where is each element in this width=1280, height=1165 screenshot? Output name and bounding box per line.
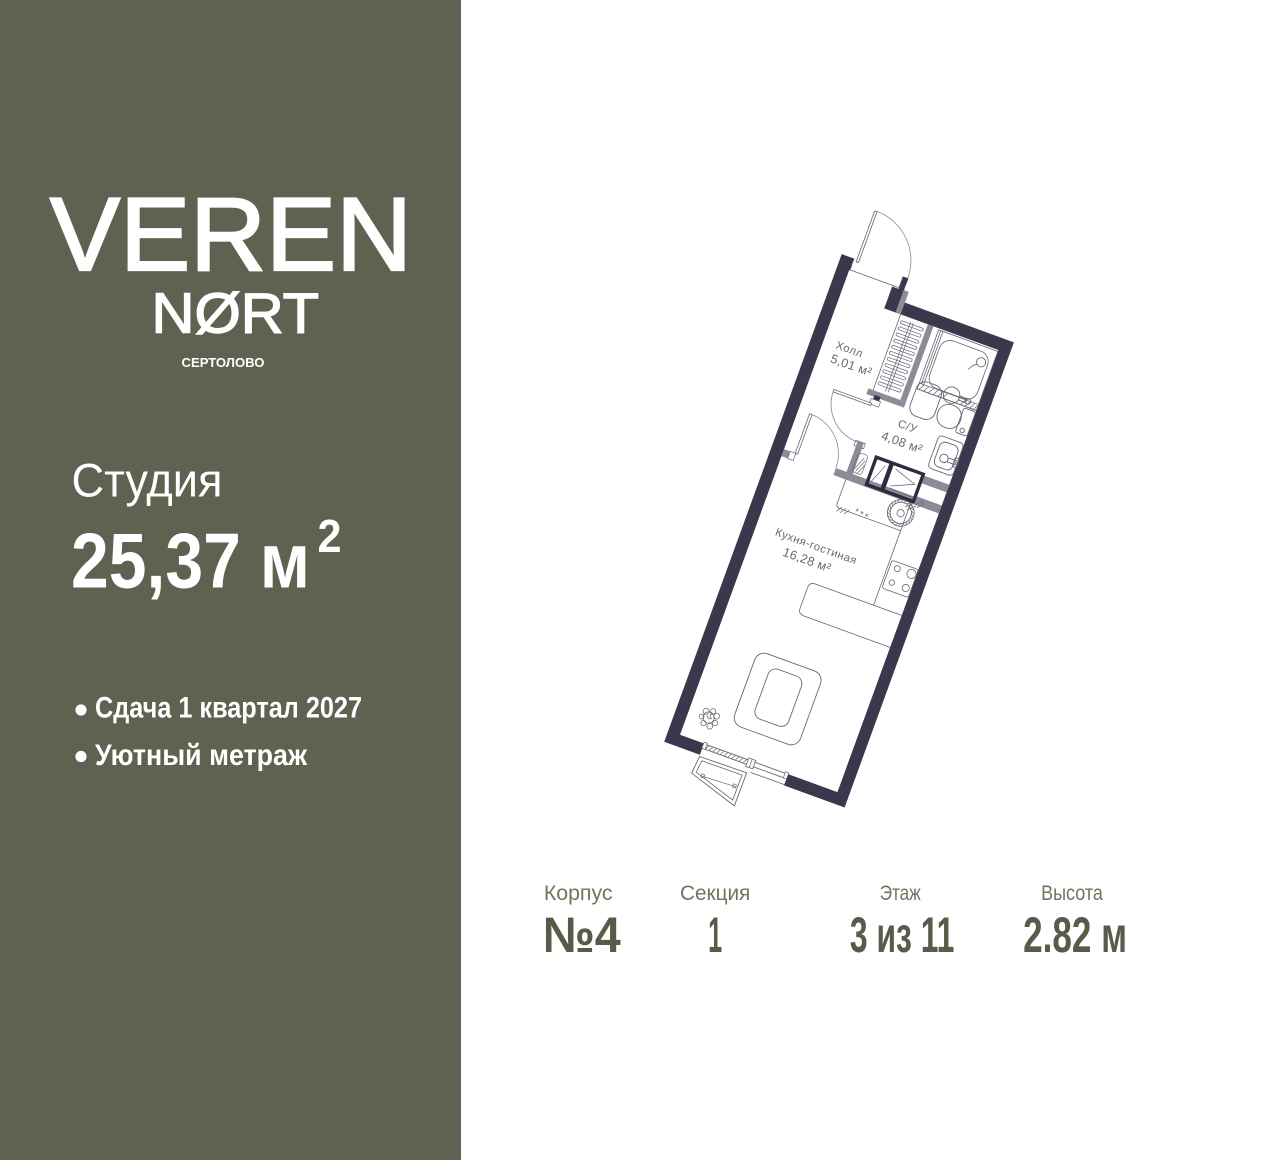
- svg-text:2: 2: [318, 510, 342, 562]
- svg-text:Уютный метраж: Уютный метраж: [95, 739, 308, 772]
- svg-text:Секция: Секция: [680, 882, 750, 905]
- svg-text:№4: №4: [543, 907, 621, 963]
- svg-text:NØRT: NØRT: [152, 282, 320, 346]
- svg-text:1: 1: [708, 907, 722, 963]
- svg-text:Студия: Студия: [72, 454, 223, 507]
- svg-text:Этаж: Этаж: [880, 882, 921, 905]
- svg-text:Высота: Высота: [1041, 882, 1103, 905]
- svg-text:VEREN: VEREN: [50, 177, 412, 293]
- svg-text:Сдача 1 квартал 2027: Сдача 1 квартал 2027: [95, 692, 362, 725]
- svg-text:СЕРТОЛОВО: СЕРТОЛОВО: [182, 355, 265, 370]
- svg-text:25,37 м: 25,37 м: [71, 519, 310, 605]
- svg-text:2.82 м: 2.82 м: [1023, 907, 1127, 963]
- svg-text:3 из 11: 3 из 11: [850, 907, 955, 963]
- svg-text:Корпус: Корпус: [544, 882, 613, 905]
